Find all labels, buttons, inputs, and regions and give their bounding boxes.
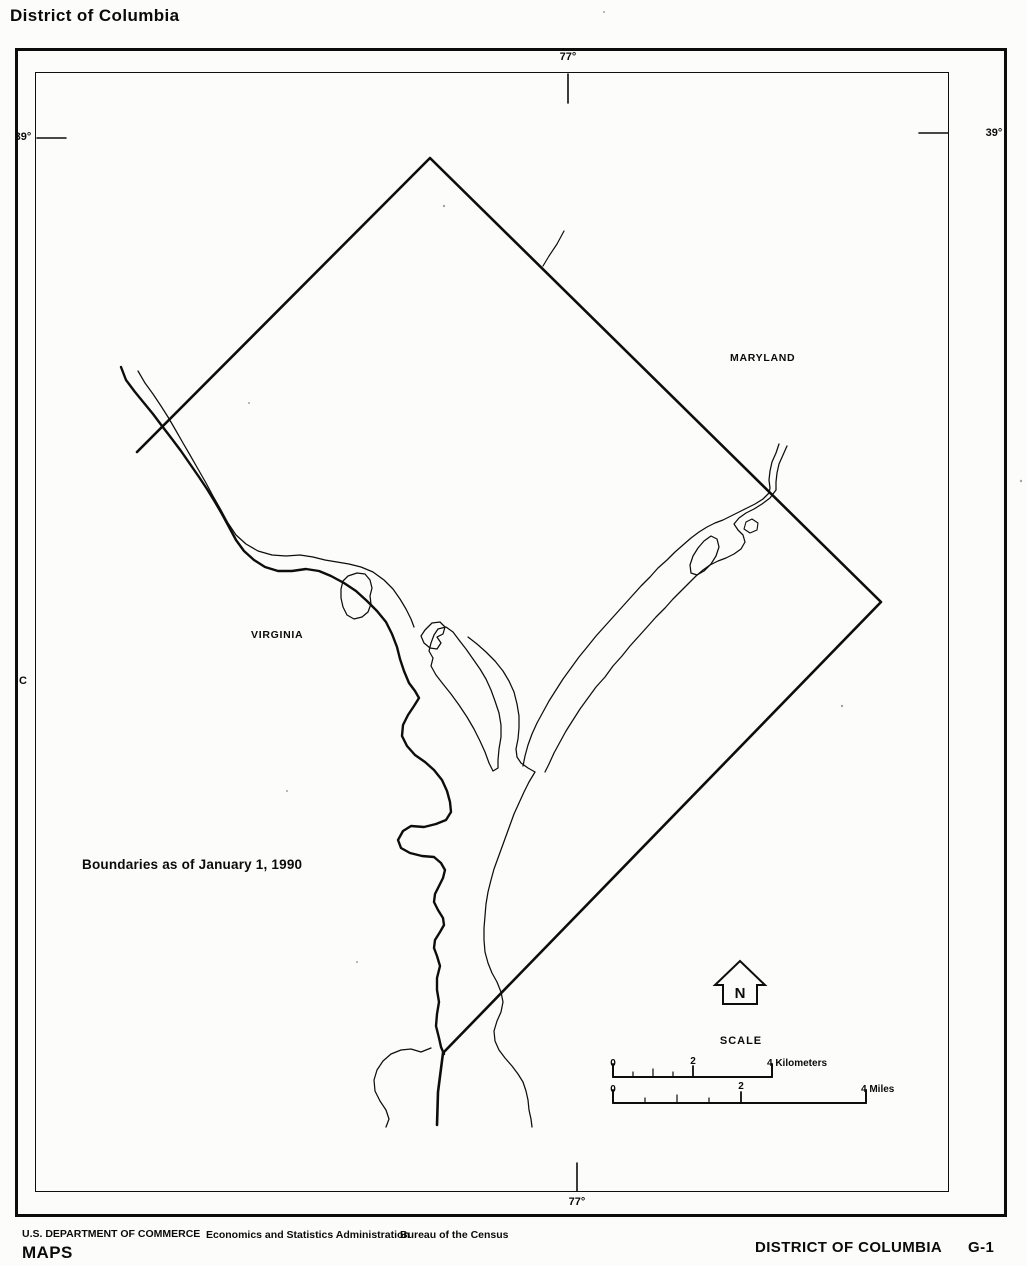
footer-sheet-number: G-1 bbox=[968, 1239, 994, 1256]
potomac-west-bank bbox=[121, 367, 451, 1054]
stream-line bbox=[543, 231, 564, 266]
map-linework bbox=[0, 0, 1027, 1266]
north-arrow-label: N bbox=[735, 985, 746, 1002]
scale-km-four: 4 Kilometers bbox=[767, 1058, 827, 1069]
scan-specks bbox=[248, 11, 1022, 963]
east-potomac-island bbox=[429, 627, 501, 771]
washington-channel-shore bbox=[468, 637, 535, 772]
anacostia-upstream-east bbox=[776, 446, 787, 490]
scanned-map-page: { "title": "District of Columbia", "map"… bbox=[0, 0, 1027, 1266]
footer-department: U.S. DEPARTMENT OF COMMERCE bbox=[22, 1228, 200, 1240]
dc-boundary-line bbox=[137, 158, 881, 1125]
scale-mi-zero: 0 bbox=[610, 1084, 616, 1095]
footer-administration: Economics and Statistics Administration bbox=[206, 1229, 410, 1241]
potomac-lower-east-shore bbox=[484, 772, 535, 1127]
scale-title: SCALE bbox=[720, 1035, 762, 1047]
footer-sheet-title: DISTRICT OF COLUMBIA bbox=[755, 1239, 942, 1256]
anacostia-north-bank bbox=[523, 493, 769, 766]
footer-bureau: Bureau of the Census bbox=[400, 1229, 509, 1241]
alexandria-shore bbox=[374, 1048, 431, 1127]
anacostia-south-bank bbox=[545, 490, 776, 772]
scale-km-zero: 0 bbox=[610, 1058, 616, 1069]
anacostia-marsh-islet bbox=[744, 519, 758, 533]
tidal-basin-shore bbox=[421, 622, 445, 649]
scale-mi-two: 2 bbox=[738, 1081, 744, 1092]
scale-km-two: 2 bbox=[690, 1056, 696, 1067]
roosevelt-island bbox=[341, 573, 372, 619]
scale-mi-four: 4 Miles bbox=[861, 1084, 894, 1095]
footer-series-maps: MAPS bbox=[22, 1243, 73, 1263]
